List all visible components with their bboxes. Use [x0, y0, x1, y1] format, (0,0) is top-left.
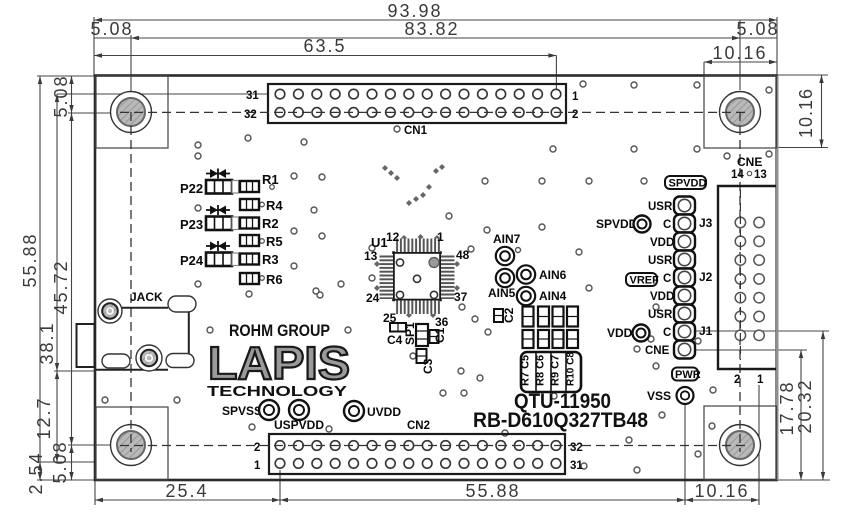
- svg-text:VDD: VDD: [650, 237, 674, 249]
- svg-text:CNE: CNE: [737, 155, 762, 169]
- svg-text:J2: J2: [699, 270, 713, 284]
- svg-text:TECHNOLOGY: TECHNOLOGY: [207, 384, 347, 400]
- svg-text:USR: USR: [648, 201, 673, 213]
- svg-text:AIN5: AIN5: [488, 286, 516, 300]
- svg-text:13: 13: [754, 169, 767, 181]
- svg-text:JACK: JACK: [130, 290, 163, 304]
- svg-text:5.08: 5.08: [51, 74, 71, 117]
- svg-text:48: 48: [456, 248, 470, 262]
- svg-text:10.16: 10.16: [712, 43, 767, 63]
- svg-text:10.16: 10.16: [694, 481, 749, 501]
- svg-text:SPVDD: SPVDD: [596, 217, 638, 231]
- svg-text:SPVSS: SPVSS: [222, 404, 262, 418]
- svg-text:CN1: CN1: [404, 125, 428, 137]
- svg-text:C1: C1: [433, 327, 447, 343]
- svg-text:5.08: 5.08: [736, 19, 779, 39]
- svg-text:13: 13: [364, 249, 378, 263]
- svg-text:37: 37: [454, 290, 468, 304]
- svg-text:2: 2: [734, 374, 740, 386]
- svg-text:VDD: VDD: [650, 291, 674, 303]
- svg-text:25.4: 25.4: [165, 481, 208, 501]
- svg-text:SPVDD: SPVDD: [669, 178, 707, 190]
- svg-text:SP1: SP1: [403, 322, 417, 345]
- svg-text:VDD: VDD: [607, 326, 633, 340]
- svg-text:J1: J1: [699, 324, 713, 338]
- svg-text:45.72: 45.72: [51, 259, 71, 314]
- svg-text:1: 1: [437, 230, 444, 244]
- svg-text:55.88: 55.88: [465, 481, 520, 501]
- svg-text:J3: J3: [699, 216, 713, 230]
- svg-text:VREF: VREF: [630, 275, 660, 287]
- svg-text:14: 14: [731, 169, 744, 181]
- svg-text:R8 C6: R8 C6: [535, 355, 547, 386]
- svg-text:2: 2: [254, 442, 260, 454]
- svg-text:R9 C7: R9 C7: [550, 355, 562, 386]
- svg-text:C: C: [663, 327, 671, 339]
- svg-text:CNE: CNE: [645, 345, 670, 357]
- svg-text:C: C: [663, 273, 671, 285]
- svg-text:63.5: 63.5: [303, 36, 346, 56]
- svg-text:C2: C2: [502, 307, 516, 323]
- svg-text:24: 24: [366, 291, 380, 305]
- svg-text:AIN6: AIN6: [539, 268, 567, 282]
- svg-text:C3: C3: [421, 358, 435, 374]
- svg-text:LAPIS: LAPIS: [208, 337, 350, 389]
- svg-text:55.88: 55.88: [20, 232, 40, 287]
- svg-text:R2: R2: [262, 216, 279, 231]
- svg-text:P22: P22: [180, 181, 203, 196]
- svg-text:C4: C4: [387, 333, 403, 347]
- svg-text:10.16: 10.16: [796, 88, 816, 138]
- svg-text:12.7: 12.7: [34, 396, 54, 439]
- svg-text:1: 1: [254, 460, 261, 472]
- svg-text:P24: P24: [180, 253, 204, 268]
- svg-text:R4: R4: [266, 198, 283, 213]
- svg-text:31: 31: [246, 90, 259, 102]
- svg-text:R1: R1: [262, 172, 279, 187]
- svg-text:RB-D610Q327TB48: RB-D610Q327TB48: [473, 409, 648, 432]
- svg-text:AIN4: AIN4: [539, 289, 567, 303]
- svg-text:P23: P23: [180, 217, 203, 232]
- svg-text:32: 32: [244, 109, 257, 121]
- svg-text:AIN7: AIN7: [493, 232, 521, 246]
- svg-text:1: 1: [757, 374, 764, 386]
- svg-text:93.98: 93.98: [387, 1, 442, 21]
- svg-text:5.08: 5.08: [90, 19, 133, 39]
- svg-text:R10 C8: R10 C8: [566, 352, 577, 386]
- svg-text:R6: R6: [266, 272, 283, 287]
- svg-text:83.82: 83.82: [404, 19, 459, 39]
- svg-text:1: 1: [572, 91, 579, 103]
- svg-text:36: 36: [435, 315, 449, 329]
- svg-text:17.78: 17.78: [777, 380, 797, 435]
- svg-text:CN2: CN2: [407, 420, 430, 432]
- svg-text:VSS: VSS: [647, 389, 671, 403]
- svg-text:R3: R3: [262, 252, 279, 267]
- svg-text:USR: USR: [648, 309, 673, 321]
- svg-text:12: 12: [386, 230, 400, 244]
- svg-text:USR: USR: [648, 255, 673, 267]
- svg-text:UVDD: UVDD: [367, 405, 401, 419]
- svg-text:USPVDD: USPVDD: [274, 418, 324, 432]
- svg-text:2: 2: [572, 109, 578, 121]
- svg-text:PWR: PWR: [675, 369, 701, 381]
- svg-text:C: C: [663, 219, 671, 231]
- svg-text:31: 31: [570, 460, 583, 472]
- svg-text:38.1: 38.1: [37, 321, 57, 364]
- svg-text:R5: R5: [266, 234, 283, 249]
- svg-text:2.54: 2.54: [26, 451, 46, 494]
- svg-text:32: 32: [570, 442, 583, 454]
- svg-text:R7 C5: R7 C5: [520, 355, 532, 386]
- svg-text:20.32: 20.32: [795, 378, 815, 433]
